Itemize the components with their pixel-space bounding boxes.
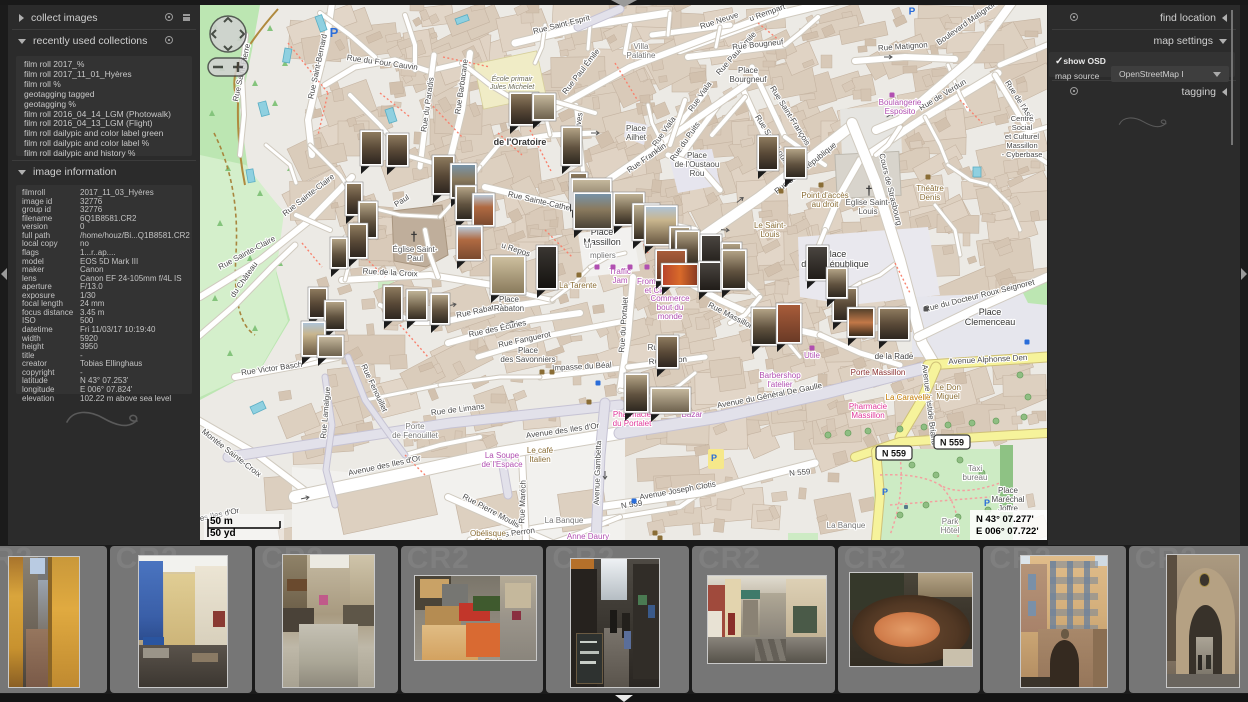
svg-text:N 43° 07.277': N 43° 07.277' (976, 514, 1034, 525)
svg-text:Miguel: Miguel (936, 392, 960, 401)
svg-text:de l'Oustaou: de l'Oustaou (675, 160, 720, 169)
svg-text:de l'Espace: de l'Espace (481, 460, 523, 469)
svg-text:N 559: N 559 (789, 467, 812, 478)
svg-text:Rabaton: Rabaton (494, 304, 524, 313)
svg-text:monde: monde (658, 312, 683, 321)
svg-text:†: † (410, 229, 417, 244)
svg-text:Hôtel: Hôtel (941, 526, 960, 535)
svg-text:ur: ur (585, 241, 592, 250)
svg-text:Le Saint-: Le Saint- (754, 221, 786, 230)
svg-text:N 559: N 559 (882, 449, 906, 459)
svg-text:Paul: Paul (407, 254, 423, 263)
svg-text:Bourgneuf: Bourgneuf (730, 75, 768, 84)
svg-text:Rou: Rou (690, 169, 705, 178)
svg-text:Anne Daury: Anne Daury (567, 532, 609, 540)
svg-text:Massillon: Massillon (1006, 141, 1037, 150)
svg-text:E 006° 07.722': E 006° 07.722' (976, 526, 1039, 537)
svg-text:Le café: Le café (527, 446, 554, 455)
svg-text:Clemenceau: Clemenceau (965, 317, 1016, 327)
svg-text:Social: Social (1012, 123, 1033, 132)
svg-text:Porte Massillon: Porte Massillon (851, 368, 906, 377)
svg-text:P: P (984, 498, 990, 508)
svg-text:Place: Place (979, 307, 1002, 317)
svg-text:et Culturel: et Culturel (1005, 132, 1040, 141)
svg-text:Esposito: Esposito (885, 107, 916, 116)
svg-text:Place: Place (518, 346, 539, 355)
svg-text:Point d'accès: Point d'accès (801, 191, 848, 200)
svg-text:Utile: Utile (804, 351, 821, 360)
svg-text:Maréchal: Maréchal (992, 495, 1025, 504)
svg-text:Park: Park (942, 517, 959, 526)
svg-text:La Banque: La Banque (545, 516, 584, 525)
svg-text:Barbershop: Barbershop (759, 371, 801, 380)
svg-text:Place: Place (738, 66, 759, 75)
svg-text:La Tarente: La Tarente (559, 281, 597, 290)
svg-text:Louis: Louis (760, 230, 779, 239)
svg-text:Jam: Jam (612, 276, 627, 285)
svg-text:de l'Oratoire: de l'Oratoire (494, 137, 547, 147)
svg-text:Le Don: Le Don (935, 383, 961, 392)
svg-text:bout du: bout du (657, 303, 684, 312)
svg-text:Église Saint-: Église Saint- (846, 198, 891, 207)
svg-text:Denis: Denis (920, 193, 940, 202)
svg-text:P: P (711, 453, 717, 463)
svg-text:du Portalet: du Portalet (613, 419, 652, 428)
svg-text:Villa: Villa (634, 42, 650, 51)
svg-text:P: P (909, 7, 916, 18)
svg-text:La Banque: La Banque (827, 521, 866, 530)
svg-text:50 yd: 50 yd (210, 528, 236, 539)
svg-text:Porte: Porte (405, 422, 425, 431)
svg-text:P: P (330, 25, 339, 40)
svg-text:Commerce: Commerce (650, 294, 690, 303)
svg-text:N 559: N 559 (940, 438, 964, 448)
svg-text:Pharmacie: Pharmacie (849, 402, 888, 411)
svg-text:Rue Maréch: Rue Maréch (517, 480, 528, 524)
svg-text:mpliers: mpliers (590, 251, 616, 260)
svg-text:Centre: Centre (1011, 114, 1034, 123)
svg-text:de la Rade: de la Rade (875, 352, 914, 361)
svg-text:de Fenouillet: de Fenouillet (392, 431, 439, 440)
svg-text:Massillon: Massillon (851, 411, 884, 420)
svg-text:des Savonniers: des Savonniers (500, 355, 555, 364)
svg-text:- Cyberbase: - Cyberbase (1002, 150, 1043, 159)
svg-text:Place: Place (499, 295, 520, 304)
svg-text:†: † (865, 183, 872, 198)
svg-text:bureau: bureau (963, 473, 988, 482)
svg-text:Taxi: Taxi (968, 464, 982, 473)
svg-text:Place: Place (626, 124, 647, 133)
svg-text:Église Saint-: Église Saint- (393, 245, 438, 254)
svg-text:Ailhet: Ailhet (626, 133, 647, 142)
svg-text:50 m: 50 m (210, 516, 233, 527)
svg-text:Palatine: Palatine (627, 51, 656, 60)
svg-text:au droit: au droit (812, 200, 839, 209)
svg-text:Place: Place (687, 151, 708, 160)
svg-text:Italien: Italien (529, 455, 550, 464)
svg-text:de Stulz: de Stulz (474, 537, 503, 540)
svg-text:Place: Place (998, 486, 1019, 495)
svg-text:P: P (882, 487, 888, 497)
svg-text:Jules Michelet: Jules Michelet (489, 84, 535, 91)
svg-text:École primair: École primair (492, 74, 534, 83)
svg-text:La Caravelle: La Caravelle (886, 393, 931, 402)
svg-text:l'atelier: l'atelier (767, 380, 792, 389)
svg-text:Théâtre: Théâtre (916, 184, 944, 193)
svg-text:Louis: Louis (858, 207, 877, 216)
svg-text:Boulangerie: Boulangerie (879, 98, 922, 107)
svg-text:La Soupe: La Soupe (485, 451, 520, 460)
